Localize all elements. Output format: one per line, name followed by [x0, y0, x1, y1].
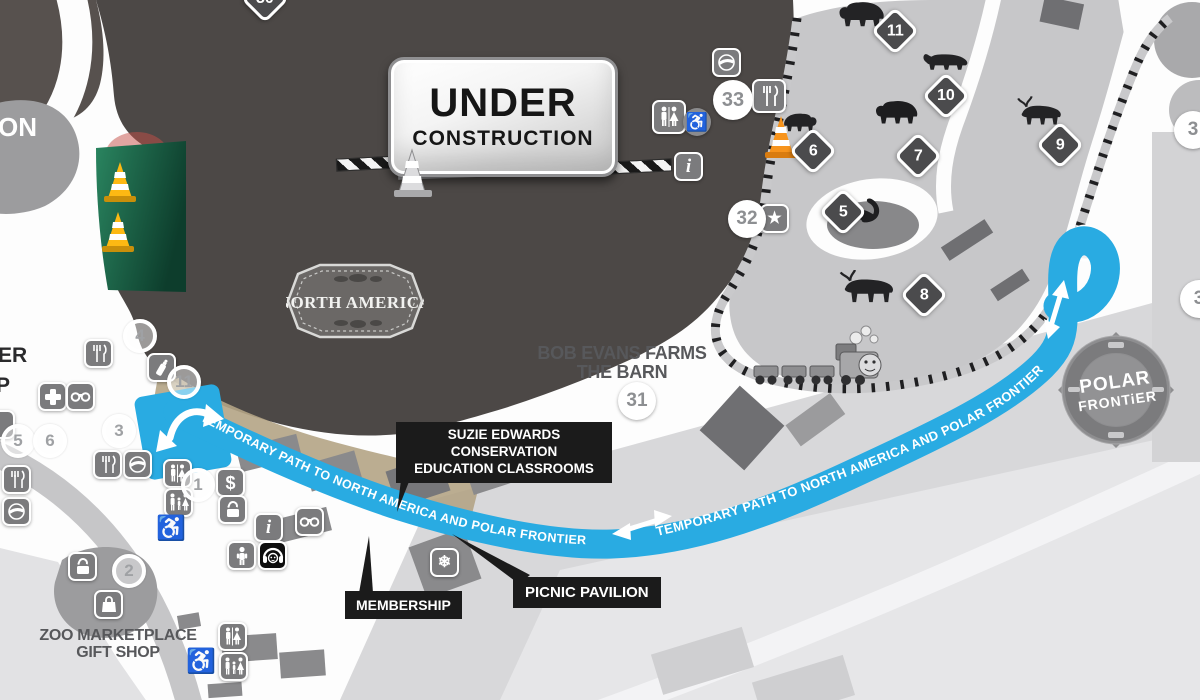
marker-circle-5: 5	[1, 424, 35, 458]
grass-patch	[96, 141, 186, 292]
edge-label-per: PER	[0, 344, 27, 368]
food-icon	[752, 79, 786, 113]
gift-bag-icon	[94, 590, 123, 619]
traffic-cone-icon	[392, 148, 434, 200]
marker-circle-4: 4	[123, 319, 157, 353]
pepsi-icon	[2, 497, 31, 526]
family-restroom-icon	[219, 652, 248, 681]
food-icon	[84, 339, 113, 368]
marker-circle-6: 6	[33, 424, 67, 458]
bob-evans-label: BOB EVANS FARMS THE BARN	[537, 344, 707, 383]
north-america-badge-label: North America	[286, 293, 424, 312]
info-icon: i	[254, 513, 283, 542]
accessible-icon: ♿	[156, 517, 186, 541]
first-aid-icon	[38, 382, 67, 411]
black-bear-icon	[872, 99, 922, 132]
edge-label-on: ON	[0, 112, 37, 143]
locker-icon	[68, 552, 97, 581]
gift-shop-label: ZOO MARKETPLACE GIFT SHOP	[38, 627, 198, 662]
food-icon	[2, 465, 31, 494]
marker-circle-33: 33	[713, 80, 753, 120]
accessible-icon: ♿	[683, 108, 711, 136]
info-icon: i	[674, 152, 703, 181]
marker-circle-32: 32	[728, 200, 766, 238]
locker-icon	[218, 495, 247, 524]
pepsi-icon	[712, 48, 741, 77]
binoculars-icon	[295, 507, 324, 536]
marker-circle-3: 3	[102, 414, 136, 448]
marker-circle-11: 11	[167, 365, 201, 399]
audio-tour-icon	[258, 541, 287, 570]
marker-circle-31: 31	[618, 382, 656, 420]
north-america-badge: North America	[286, 262, 424, 340]
child-icon	[227, 541, 256, 570]
sign-line2: CONSTRUCTION	[412, 127, 593, 151]
membership-label: MEMBERSHIP	[345, 591, 462, 619]
food-icon	[93, 450, 122, 479]
suzie-edwards-label: SUZIE EDWARDS CONSERVATION EDUCATION CLA…	[396, 422, 612, 483]
restroom-icon	[652, 100, 686, 134]
sign-line1: UNDER	[429, 83, 576, 123]
edge-label-p: P	[0, 374, 10, 398]
accessible-icon: ♿	[186, 650, 216, 674]
zoo-map: 30 TEMPORARY PATH TO NORTH AMERICA AND P…	[0, 0, 1200, 700]
polar-frontier-badge: POLAR FRONTiER	[1056, 330, 1176, 450]
marker-circle-2: 2	[112, 554, 146, 588]
moose-icon	[837, 270, 899, 313]
wolverine-icon	[921, 50, 973, 77]
pepsi-icon	[123, 450, 152, 479]
dollar-icon: $	[216, 468, 245, 497]
restroom-icon	[218, 622, 247, 651]
snowflake-icon: ❄	[430, 548, 459, 577]
marker-circle-1: 1	[181, 468, 215, 502]
binoculars-icon	[66, 382, 95, 411]
picnic-pavilion-label: PICNIC PAVILION	[513, 577, 661, 608]
